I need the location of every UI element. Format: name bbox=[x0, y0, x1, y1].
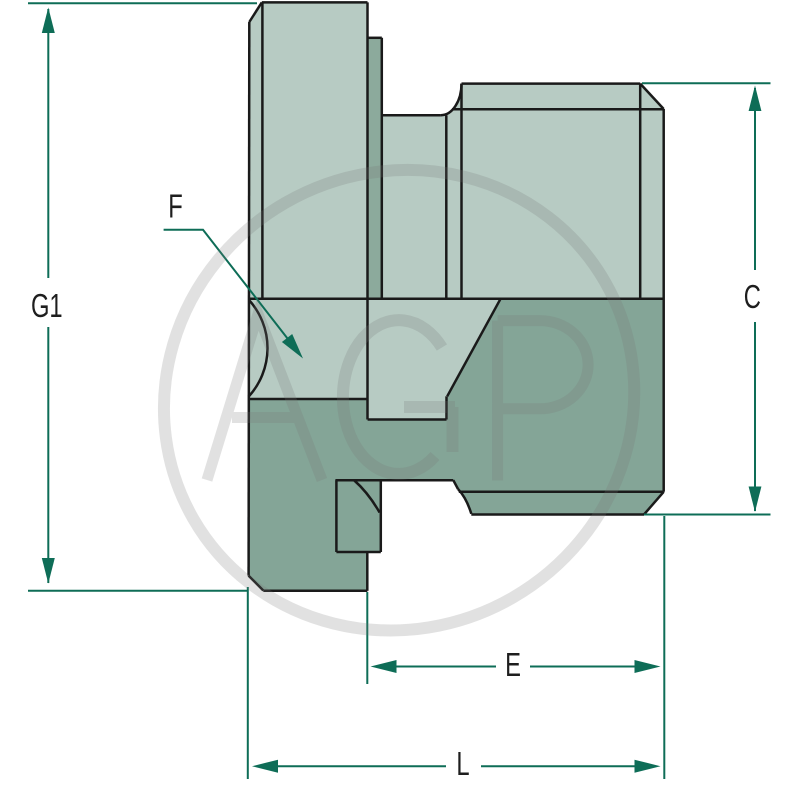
svg-text:C: C bbox=[744, 279, 761, 316]
svg-text:L: L bbox=[456, 746, 469, 783]
svg-text:F: F bbox=[168, 189, 183, 226]
svg-text:E: E bbox=[505, 647, 521, 684]
svg-text:G1: G1 bbox=[31, 288, 63, 325]
